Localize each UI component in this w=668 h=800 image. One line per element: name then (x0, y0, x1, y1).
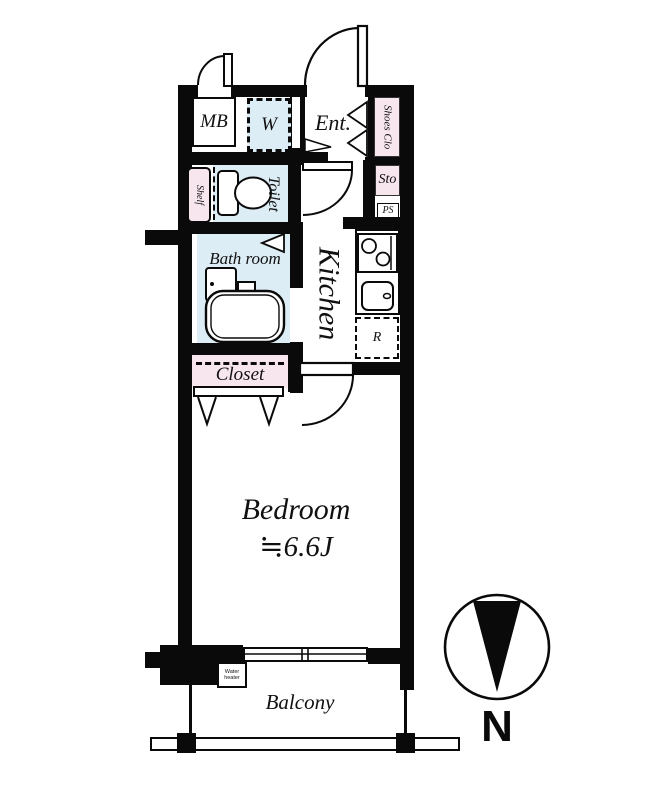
closet-door-swing-mark (198, 397, 216, 424)
floorplan-canvas: MB W Ent. Shoes Clo Toilet Shelf Sto PS … (0, 0, 668, 800)
bedroom-door-arc (302, 375, 353, 425)
bath-fold-door-icon (262, 234, 284, 252)
bedroom-door-leaf (300, 363, 353, 375)
entrance-step-marker (305, 139, 331, 152)
burner-icon (362, 239, 376, 253)
burner-icon (377, 253, 390, 266)
kitchen-sink-icon (362, 282, 393, 310)
hallway-door-leaf (303, 162, 352, 170)
toilet-bowl-icon (235, 178, 271, 209)
closet-door-swing-mark (260, 397, 278, 424)
hallway-door-arc (303, 170, 352, 215)
symbol-overlay (0, 0, 668, 800)
bathtub-icon (206, 291, 284, 342)
mb-door-arc (198, 56, 224, 85)
bath-sink-drain-icon (210, 282, 214, 286)
entrance-door-arc (305, 28, 358, 85)
shoes-closet-fold-door-icon (348, 130, 367, 156)
mb-door-leaf (224, 54, 232, 86)
shoes-closet-fold-door-icon (348, 102, 367, 128)
entrance-door-leaf (358, 26, 367, 86)
north-label: N (473, 701, 521, 753)
